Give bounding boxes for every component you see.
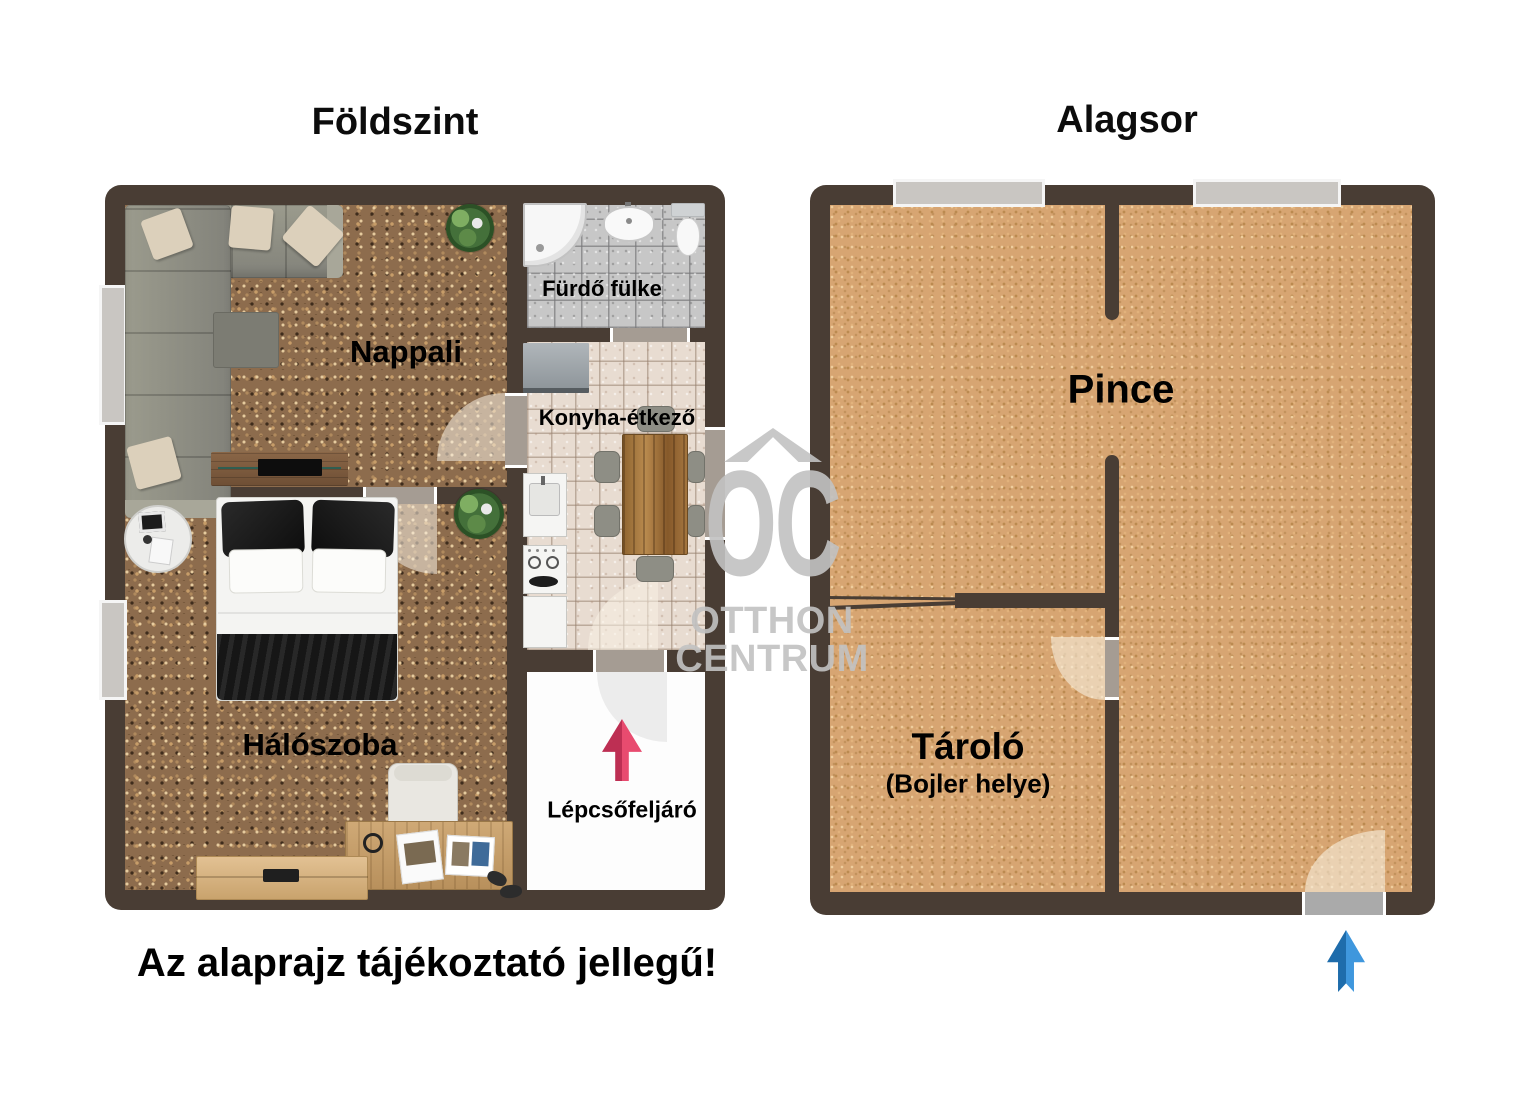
stove-knobs: [528, 549, 531, 552]
watermark-name-line2: CENTRUM: [675, 638, 868, 681]
bed-sheet-fold: [218, 612, 396, 614]
basement-partition-wall: [1105, 205, 1119, 320]
desk-paper-photo: [471, 842, 489, 867]
desk-chair-backrest: [394, 765, 452, 781]
door-bathroom: [610, 328, 690, 342]
stove-burner: [528, 556, 541, 569]
room-label-living: Nappali: [350, 334, 462, 370]
room-label-storage-note: (Bojler helye): [886, 769, 1051, 800]
kitchen-sink-bowl: [529, 483, 560, 516]
door-storage: [1105, 637, 1119, 700]
window-basement: [1193, 179, 1341, 207]
dining-chair: [687, 451, 705, 483]
plant-living: [446, 204, 494, 252]
plant-bedroom: [454, 489, 504, 539]
door-living-kitchen: [505, 393, 527, 468]
storage-wall: [955, 593, 1112, 608]
room-label-bedroom: Hálószoba: [242, 727, 397, 763]
sink-drain: [626, 218, 632, 224]
basement-partition-wall: [1105, 455, 1119, 637]
toilet-bowl: [676, 218, 700, 256]
dining-chair: [594, 451, 620, 483]
room-label-cellar: Pince: [1068, 368, 1175, 413]
door-basement-entry: [1302, 892, 1386, 915]
coffee-table: [213, 312, 279, 368]
entrance-arrow-icon: [1327, 930, 1365, 992]
bed-pillow-white: [229, 548, 304, 593]
room-label-kitchen: Konyha-étkező: [539, 405, 695, 431]
dining-chair: [687, 505, 705, 537]
room-label-stairs: Lépcsőfeljáró: [547, 797, 697, 824]
bathroom-sink: [603, 206, 655, 242]
floorplan-image: Földszint Alagsor: [0, 0, 1520, 1104]
disclaimer-text: Az alaprajz tájékoztató jellegű!: [137, 941, 717, 986]
desk-paper-photo: [404, 840, 436, 865]
kitchen-faucet: [541, 476, 545, 485]
basement-title: Alagsor: [1056, 99, 1197, 142]
window-basement: [893, 179, 1045, 207]
bed-blanket: [217, 634, 397, 700]
stove-grill: [529, 576, 558, 587]
shower-drain: [536, 244, 544, 252]
dresser-handle: [263, 869, 299, 882]
window-bedroom: [99, 600, 127, 700]
ground-floor-title: Földszint: [312, 101, 479, 144]
room-label-storage: Tároló: [911, 726, 1024, 768]
fridge: [523, 343, 589, 393]
bedside-item: [143, 535, 152, 544]
dining-chair: [594, 505, 620, 537]
sofa-pillow: [228, 205, 274, 251]
bedside-book: [148, 537, 173, 566]
bed-pillow-white: [312, 548, 387, 593]
toilet-tank: [671, 203, 705, 217]
desk-headphones: [363, 833, 383, 853]
room-label-bathroom: Fürdő fülke: [542, 276, 662, 302]
stove-burner: [546, 556, 559, 569]
tv-screen: [258, 459, 322, 476]
kitchen-cabinet: [523, 596, 567, 648]
dining-chair: [636, 556, 674, 582]
bedside-frame: [138, 511, 165, 533]
dining-table: [622, 434, 688, 555]
window-living: [99, 285, 127, 425]
basement-partition-wall: [1105, 700, 1119, 892]
door-kitchen-stairs: [593, 650, 667, 672]
watermark-monogram: OC: [705, 452, 840, 595]
desk-paper-photo: [451, 842, 469, 867]
watermark-name-line1: OTTHON: [690, 600, 853, 643]
